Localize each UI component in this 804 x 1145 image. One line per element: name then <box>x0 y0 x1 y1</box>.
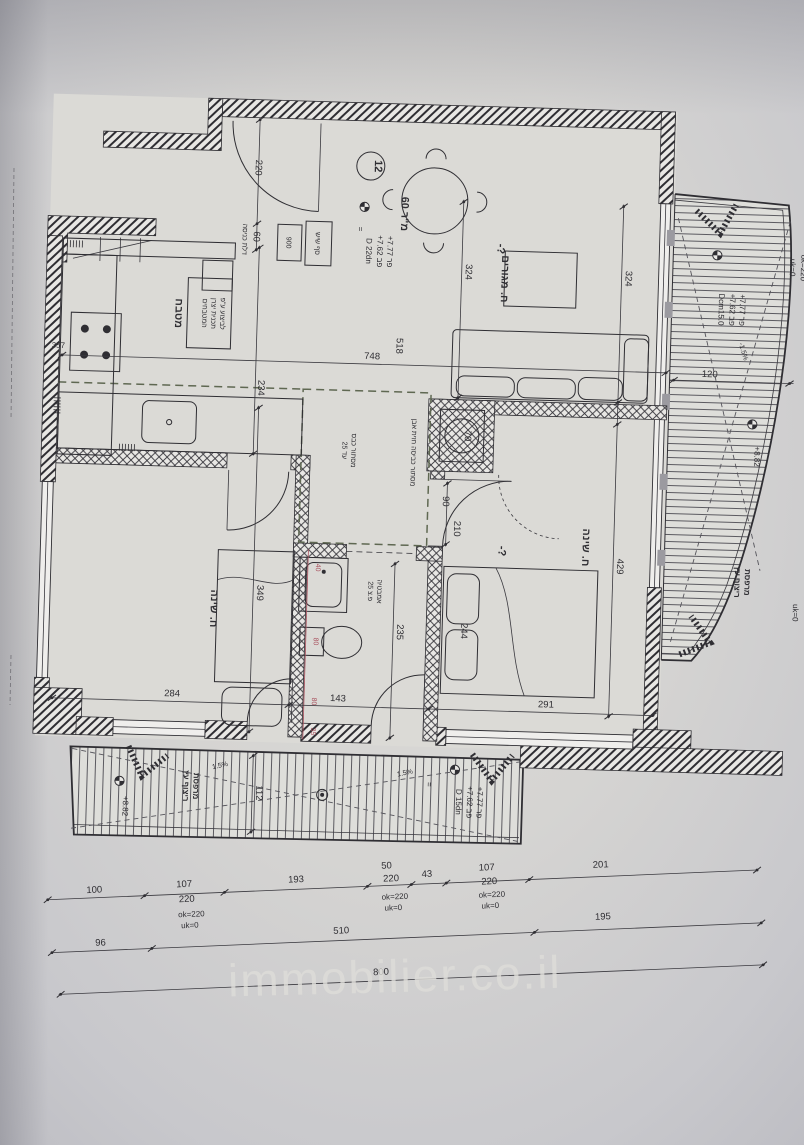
level-marker-entry: +7.77 פר +7.62 פב D 22dn <box>364 235 395 268</box>
level-882: +8.82 <box>120 796 130 817</box>
svg-text:235: 235 <box>394 624 405 640</box>
level-882: +8.82 <box>752 446 762 467</box>
balcony-right-uk: uk=0 <box>790 604 800 622</box>
floorplan-image: -1.5% +7.77 פר +7.62 פב Dcm15.0 +8.82 מר… <box>0 0 804 1145</box>
svg-text:Dcm15.0: Dcm15.0 <box>716 293 726 326</box>
svg-text:220: 220 <box>481 876 497 888</box>
svg-text:uk=0: uk=0 <box>788 259 798 277</box>
level-symbol <box>360 202 369 211</box>
svg-text:ריצוף עץ: ריצוף עץ <box>732 566 742 598</box>
svg-text:284: 284 <box>164 688 180 699</box>
svg-text:357: 357 <box>52 341 66 350</box>
svg-text:90: 90 <box>440 496 451 507</box>
svg-text:324: 324 <box>462 264 473 280</box>
svg-text:107: 107 <box>479 862 495 874</box>
svg-text:+7.77 פר: +7.77 פר <box>737 294 747 326</box>
svg-text:60: 60 <box>251 231 262 242</box>
svg-text:518: 518 <box>393 338 404 354</box>
svg-text:234: 234 <box>255 380 266 396</box>
level-symbol <box>450 765 459 774</box>
svg-text:תכנית יצרן: תכנית יצרן <box>209 298 217 329</box>
svg-text:220: 220 <box>252 160 263 176</box>
svg-text:100: 100 <box>86 884 102 896</box>
svg-text:510: 510 <box>333 925 349 937</box>
entry-box-a: 900 <box>284 237 291 249</box>
svg-text:40: 40 <box>314 564 321 572</box>
svg-text:748: 748 <box>364 351 380 362</box>
svg-text:מסתור כבס: מסתור כבס <box>349 433 357 468</box>
bedroom-left-label: ח. שינה <box>207 589 220 627</box>
svg-text:+7.62 פב: +7.62 פב <box>375 235 385 268</box>
bedroom-right-label: ח. שינה <box>579 528 592 566</box>
level-symbol <box>748 420 757 429</box>
svg-text:12: 12 <box>372 160 384 173</box>
svg-text:D 15dn: D 15dn <box>454 789 464 815</box>
svg-text:220: 220 <box>383 873 399 885</box>
equals-mark: = <box>424 782 433 787</box>
svg-text:uk=0: uk=0 <box>181 920 199 930</box>
level-symbol <box>115 776 124 785</box>
svg-text:201: 201 <box>593 859 609 871</box>
svg-text:מרפסת: מרפסת <box>742 569 752 596</box>
dim-112: 112 <box>253 785 264 800</box>
svg-text:429: 429 <box>614 558 625 574</box>
svg-text:80: 80 <box>312 637 319 645</box>
svg-text:מרפסת: מרפסת <box>191 773 201 800</box>
svg-text:349: 349 <box>254 585 265 601</box>
balcony-bottom-label: מרפסת ריצוף עץ <box>181 770 201 802</box>
balcony-bottom: 1.5% 1.5% מרפסת ריצוף עץ 112 +8.82 +7.77… <box>68 742 524 847</box>
living-label: ח. מגורים <box>498 255 511 303</box>
svg-text:עד 25: עד 25 <box>340 441 348 459</box>
level-marker-balcony-right: +7.77 פר +7.62 פב Dcm15.0 <box>716 293 747 327</box>
svg-text:50: 50 <box>381 860 392 871</box>
svg-text:35: 35 <box>309 727 316 735</box>
svg-text:107: 107 <box>176 879 192 891</box>
svg-text:אמבטיה: אמבטיה <box>375 579 383 604</box>
svg-text:96: 96 <box>95 937 106 948</box>
svg-text:244: 244 <box>458 623 469 639</box>
svg-text:ok=220: ok=220 <box>478 890 505 900</box>
svg-text:220: 220 <box>179 894 195 906</box>
svg-text:המטבחים: המטבחים <box>200 299 208 328</box>
svg-text:210: 210 <box>451 521 462 537</box>
svg-text:uk=0: uk=0 <box>481 901 499 911</box>
svg-text:לביצוע ע"פ: לביצוע ע"פ <box>218 298 227 331</box>
entry-door-label: דלת כניסה <box>240 224 249 256</box>
level-symbol <box>713 251 722 260</box>
dim-120: 120 <box>702 369 718 380</box>
living-question: -? <box>494 244 506 255</box>
svg-text:ok=220: ok=220 <box>178 909 205 919</box>
svg-text:+7.77 פר: +7.77 פר <box>385 236 395 268</box>
kitchen-label: מטבח <box>172 298 185 328</box>
svg-text:+7.62 פב: +7.62 פב <box>465 786 475 819</box>
svg-text:ok=220: ok=220 <box>381 892 408 902</box>
svg-text:80: 80 <box>310 697 317 705</box>
svg-text:193: 193 <box>288 874 304 886</box>
svg-text:uk=0: uk=0 <box>384 903 402 913</box>
balcony-right-label: מרפסת ריצוף עץ <box>732 566 752 598</box>
shaft-size: 70 <box>462 431 473 442</box>
svg-text:291: 291 <box>538 699 554 710</box>
unit-area: 60 מ"ר <box>398 197 411 232</box>
svg-text:+7.62 פב: +7.62 פב <box>727 294 737 327</box>
bedroom-right-question: -? <box>495 546 507 557</box>
svg-text:195: 195 <box>595 911 611 923</box>
utility-shaft: 70 <box>427 399 495 473</box>
watermark: immobilier.co.il <box>227 946 562 1007</box>
equals-mark: = <box>356 227 365 232</box>
svg-text:324: 324 <box>622 271 633 287</box>
svg-text:143: 143 <box>330 693 346 704</box>
apartment-floor <box>35 94 678 754</box>
svg-text:ריצוף עץ: ריצוף עץ <box>181 770 191 802</box>
svg-text:D 22dn: D 22dn <box>364 238 374 264</box>
svg-text:ok=220: ok=220 <box>799 255 804 282</box>
svg-text:פ.צ 25: פ.צ 25 <box>366 581 374 601</box>
svg-text:43: 43 <box>421 869 432 880</box>
svg-text:+7.77 פר: +7.77 פר <box>475 787 485 819</box>
level-marker-balcony-bottom: +7.77 פר +7.62 פב D 15dn <box>454 786 485 819</box>
floorplan-photo: -1.5% +7.77 פר +7.62 פב Dcm15.0 +8.82 מר… <box>0 0 804 1145</box>
entry-box-b: סף שיש <box>313 232 321 255</box>
